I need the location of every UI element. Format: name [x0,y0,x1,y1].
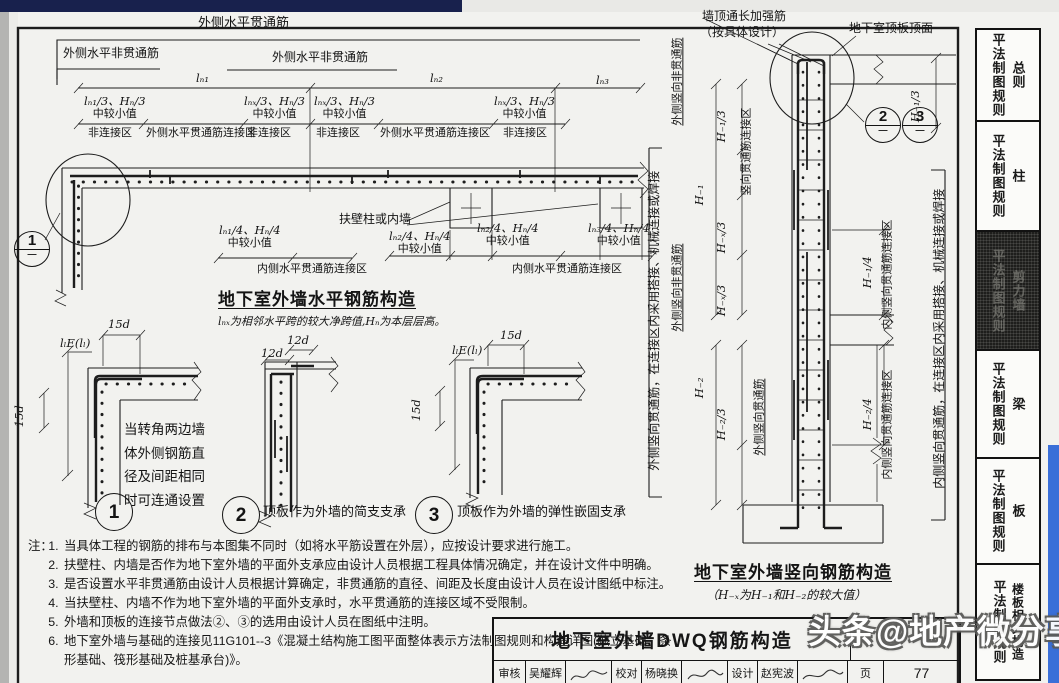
section-dim-h1: H₋₁ [693,185,706,206]
designer-label: 设计 [728,660,758,683]
plan-zone-2: 外侧水平贯通筋连接区 [146,127,256,140]
plan-bottom-dim-3: lₙ₂/4、Hₙ/4中较小值 [477,222,539,248]
detail1-dim-lap: lₗE(lₗ) [60,337,90,350]
section-dim-hx3-b: H₋ₓ/3 [715,285,728,316]
tab-label: 平法制图规则 [989,249,1008,333]
note-item: 扶壁柱、内墙是否作为地下室外墙的平面外支承应由设计人员根据工程具体情况确定，并在… [62,556,680,575]
checker-label: 校对 [612,660,642,683]
section-dim-h1-3-right: H₋₁/3 [909,90,922,122]
section-outer-nonthrough-2: 外侧竖向非贯通筋 [671,244,684,332]
plan-bottom-dim-2: lₙ₂/4、Hₙ/4中较小值 [389,230,451,256]
tab-sublabel: 板 [1009,504,1028,518]
section-dim-hx3-a: H₋ₓ/3 [715,222,728,253]
detail2-linework [259,345,338,527]
detail3-dim-lap: lₗE(lₗ) [452,344,482,357]
scanned-drawing-page: 外侧水平贯通筋 外侧水平非贯通筋 外侧水平非贯通筋 lₙ₁ lₙ₂ lₙ₃ lₙ… [0,0,1059,683]
plan-top-dim-2: lₙₓ/3、Hₙ/3中较小值 [244,95,305,121]
tab-column: 平法制图规则 柱 [975,120,1041,232]
section-outer-nonthrough-1: 外侧竖向非贯通筋 [671,38,684,126]
detail1-dim-15d-side: 15d [13,405,26,427]
plan-bottom-dim-1: lₙ₁/4、Hₙ/4中较小值 [219,224,281,250]
detail2-bubble: 2 [222,496,260,534]
plan-zone-4: 非连接区 [316,127,360,140]
notes-prefix: 注： [28,537,53,556]
detail2-caption: 顶板作为外墙的简支支承 [263,505,406,520]
section-wall-top-bar-note-2: （按具体设计） [700,26,784,40]
section-subtitle: （H₋ₓ为H₋₁和H₋₂的较大值） [706,589,866,603]
plan-bottom-zone-2: 内侧水平贯通筋连接区 [512,263,622,276]
plan-top-dim-1: lₙ₁/3、Hₙ/3中较小值 [84,95,146,121]
drawing-title: 地下室外墙DWQ钢筋构造 [494,619,851,660]
section-dim-h2-3: H₋₂/3 [715,408,728,440]
section-zone-right-1: 内侧竖向贯通筋连接区 [881,220,894,330]
plan-zone-1: 非连接区 [88,127,132,140]
checker-signature [682,660,728,683]
plan-title: 地下室外墙水平钢筋构造 [218,290,416,310]
title-block-row-2: 审核 吴耀辉 校对 杨晓换 设计 赵宪波 页 77 [494,660,959,683]
tab-label: 平法制图规则 [989,33,1008,117]
detail3-bubble: 3 [415,496,453,534]
section-zone-left: 竖向贯通筋连接区 [740,108,753,196]
plan-bottom-dim-4: lₙ₃/4、Hₙ/4中较小值 [588,222,650,248]
designer-name: 赵宪波 [758,660,798,683]
plan-nonthrough-label-1: 外侧水平非贯通筋 [63,47,159,61]
detail3-caption: 顶板作为外墙的弹性嵌固支承 [457,505,626,520]
plan-wall-linework [45,154,648,306]
reviewer-signature [566,660,612,683]
section-dim-h2: H₋₂ [693,378,706,399]
detail3-dim-15d-side: 15d [410,399,423,421]
reviewer-name: 吴耀辉 [526,660,566,683]
tab-beam: 平法制图规则 梁 [975,349,1041,459]
tab-label: 平法制图规则 [989,469,1008,553]
designer-signature [798,660,848,683]
section-dim-h2-4: H₋₂/4 [861,398,874,430]
plan-nonthrough-label-2: 外侧水平非贯通筋 [272,51,368,65]
section-dim-lines [649,18,945,520]
detail3-linework [435,340,585,509]
plan-span3-dim: lₙ₃ [596,74,609,87]
section-detail-bubble-2: 2— [865,107,901,143]
plan-zone-5: 外侧水平贯通筋连接区 [380,127,490,140]
section-right-bracket-note: 内侧竖向贯通筋，在连接区内采用搭接、机械连接或焊接 [933,189,947,489]
plan-top-dim-4: lₙₓ/3、Hₙ/3中较小值 [494,95,555,121]
section-roof-slab-note: 地下室顶板顶面 [849,22,933,36]
plan-subtitle: lₙₓ为相邻水平跨的较大净跨值,Hₙ为本层层高。 [218,316,445,329]
detail1-bubble: 1 [95,493,133,531]
plan-zone-6: 非连接区 [503,127,547,140]
plan-bottom-zone-1: 内侧水平贯通筋连接区 [257,263,367,276]
plan-detail-bubble-1: 1— [14,231,50,267]
toutiao-watermark: 头条@地产微分享 [808,605,1059,653]
section-dim-h1-3-left: H₋₁/3 [715,110,728,142]
tab-label: 平法制图规则 [989,362,1008,446]
plan-top-dim-3: lₙₓ/3、Hₙ/3中较小值 [314,95,375,121]
tab-sublabel: 总则 [1009,61,1028,89]
plan-span2-dim: lₙ₂ [430,72,443,85]
detail1-dim-15d-top: 15d [108,318,130,331]
section-zone-right-2: 内侧竖向贯通筋连接区 [881,370,894,480]
section-wall-top-bar-note: 墙顶通长加强筋 [702,10,786,24]
drawing-sheet: 外侧水平贯通筋 外侧水平非贯通筋 外侧水平非贯通筋 lₙ₁ lₙ₂ lₙ₃ lₙ… [0,0,1059,683]
plan-pilaster-label: 扶壁柱或内墙 [339,213,411,227]
section-dim-h1-4: H₋₁/4 [861,256,874,288]
note-item: 是否设置水平非贯通筋由设计人员根据计算确定，非贯通筋的直径、间距及长度由设计人员… [62,575,680,594]
detail3-dim-15d-top: 15d [500,329,522,342]
note-item: 当扶壁柱、内墙不作为地下室外墙的平面外支承时，水平贯通筋的连接区域不受限制。 [62,594,680,613]
tab-general-rules: 平法制图规则 总则 [975,28,1041,122]
section-left-bracket-note: 外侧竖向贯通筋，在连接区内采用搭接、机械连接或焊接 [648,171,662,471]
tab-label: 平法制图规则 [989,134,1008,218]
section-outer-through: 外侧竖向贯通筋 [753,379,766,456]
section-tab-strip: 平法制图规则 总则 平法制图规则 柱 平法制图规则 剪力墙 平法制图规则 梁 平… [975,28,1041,681]
section-title: 地下室外墙竖向钢筋构造 [694,563,892,583]
plan-outer-through-label: 外侧水平贯通筋 [198,16,289,31]
page-number: 77 [884,660,959,683]
tab-sublabel: 梁 [1009,397,1028,411]
detail2-dim-12d-lower: 12d [261,347,283,360]
plan-span1-dim: lₙ₁ [196,72,209,85]
tab-sublabel: 剪力墙 [1009,270,1028,312]
note-item: 当具体工程的钢筋的排布与本图集不同时（如将水平筋设置在外层），应按设计要求进行施… [62,537,680,556]
tab-shear-wall-selected: 平法制图规则 剪力墙 [975,230,1041,351]
tab-sublabel: 柱 [1009,169,1028,183]
plan-zone-3: 非连接区 [247,127,291,140]
tab-slab: 平法制图规则 板 [975,457,1041,565]
checker-name: 杨晓换 [642,660,682,683]
page-label: 页 [848,660,884,683]
detail1-note: 当转角两边墙体外侧钢筋直径及间距相同时可连通设置 [124,418,208,513]
detail2-dim-12d-upper: 12d [287,334,309,347]
reviewer-label: 审核 [494,660,526,683]
